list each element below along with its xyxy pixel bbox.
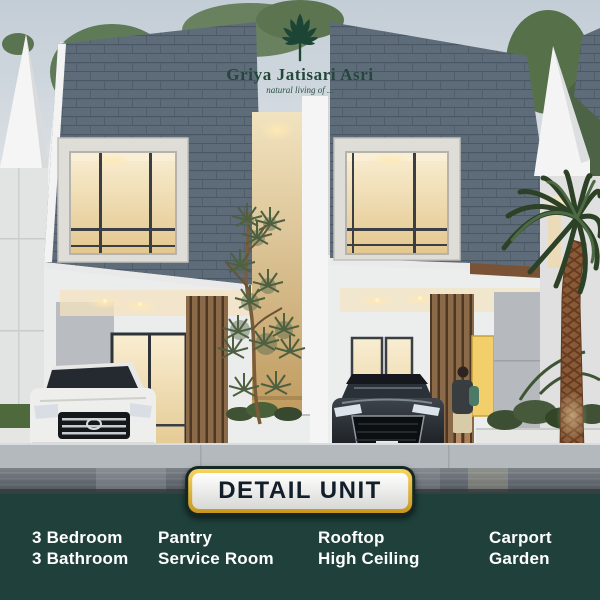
lotus-icon: [272, 8, 328, 64]
feature-item: 3 Bedroom: [32, 527, 128, 548]
feature-item: Service Room: [158, 548, 274, 569]
poster: Griya Jatisari Asri natural living of ..…: [0, 0, 600, 600]
brand-tagline: natural living of ...: [0, 85, 600, 95]
feature-column: 3 Bedroom 3 Bathroom: [32, 527, 128, 569]
brand-name: Griya Jatisari Asri: [0, 65, 600, 85]
feature-item: High Ceiling: [318, 548, 420, 569]
feature-item: 3 Bathroom: [32, 548, 128, 569]
gold-border: DETAIL UNIT: [188, 469, 412, 513]
brand-logo: Griya Jatisari Asri natural living of ..…: [0, 8, 600, 95]
feature-item: Rooftop: [318, 527, 420, 548]
left-upper-window: [58, 138, 188, 262]
left-wood-slats: [186, 296, 228, 462]
feature-item: Pantry: [158, 527, 274, 548]
feature-item: Carport: [489, 527, 552, 548]
detail-unit-label: DETAIL UNIT: [218, 477, 382, 505]
feature-column: Pantry Service Room: [158, 527, 274, 569]
right-upper-window: [334, 138, 460, 260]
detail-unit-button[interactable]: DETAIL UNIT: [185, 466, 415, 516]
feature-column: Rooftop High Ceiling: [318, 527, 420, 569]
feature-item: Garden: [489, 548, 552, 569]
feature-column: Carport Garden: [489, 527, 552, 569]
